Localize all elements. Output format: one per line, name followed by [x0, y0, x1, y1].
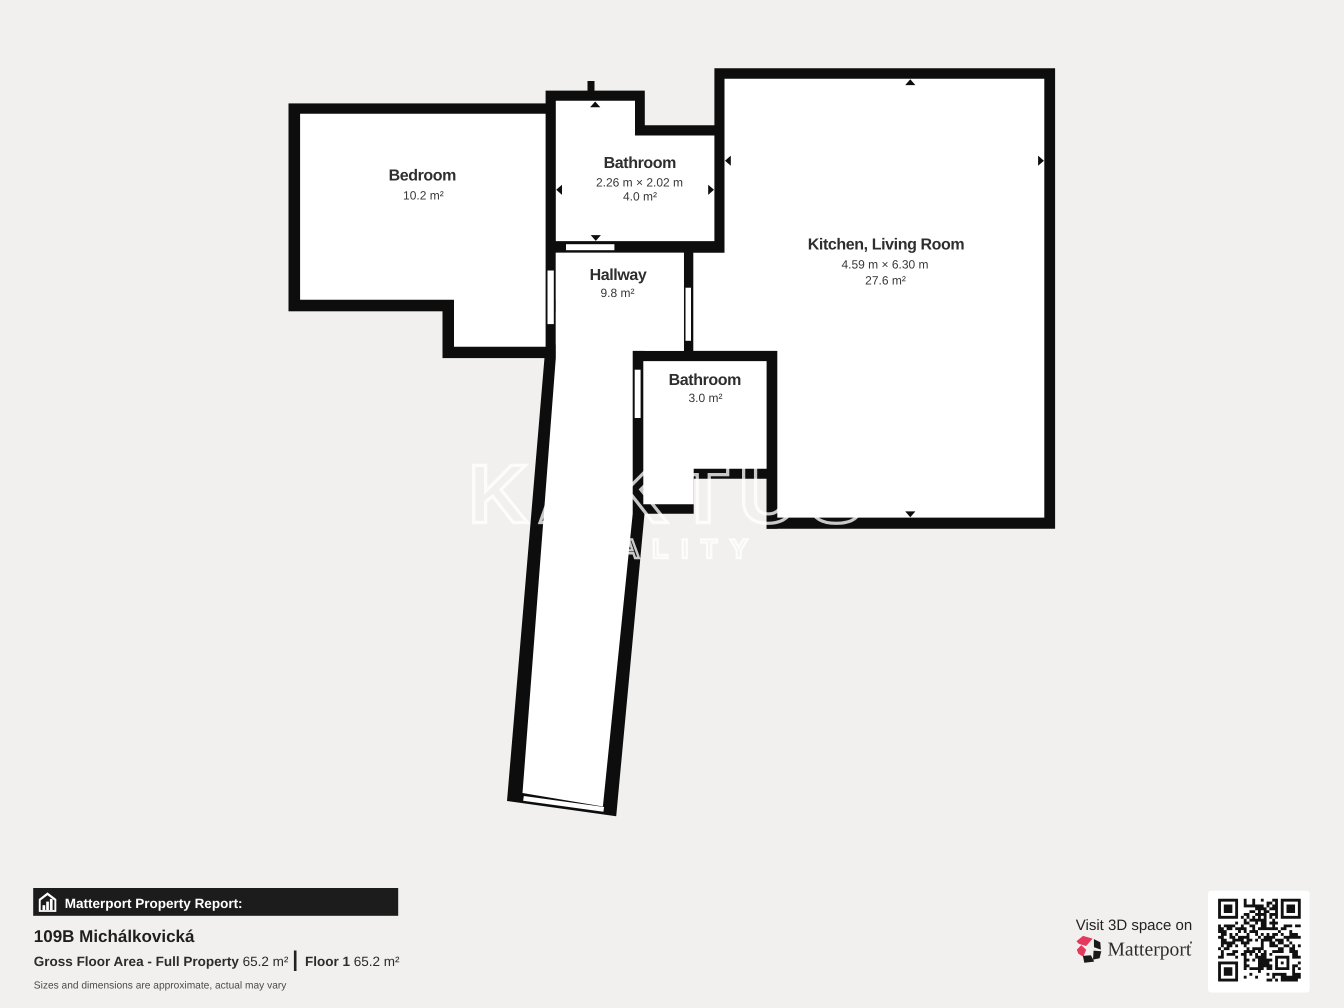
svg-text:Gross Floor Area - Full Proper: Gross Floor Area - Full Property 65.2 m²: [34, 954, 289, 969]
svg-text:KAKTUS: KAKTUS: [468, 448, 874, 541]
svg-text:3.0 m²: 3.0 m²: [688, 391, 722, 405]
svg-text:4.59 m × 6.30 m: 4.59 m × 6.30 m: [841, 258, 928, 272]
svg-text:Floor 1 65.2 m²: Floor 1 65.2 m²: [305, 954, 400, 969]
svg-text:Visit 3D space on: Visit 3D space on: [1076, 917, 1192, 934]
svg-text:27.6 m²: 27.6 m²: [865, 273, 906, 287]
svg-text:10.2 m²: 10.2 m²: [403, 188, 444, 202]
svg-text:9.8 m²: 9.8 m²: [600, 286, 634, 300]
svg-text:Bathroom: Bathroom: [669, 372, 742, 389]
svg-text:Bathroom: Bathroom: [604, 155, 677, 172]
svg-text:4.0 m²: 4.0 m²: [623, 189, 657, 203]
svg-text:Matterport Property Report:: Matterport Property Report:: [65, 896, 243, 911]
svg-text:REALITY: REALITY: [558, 534, 760, 564]
svg-text:Hallway: Hallway: [590, 267, 647, 284]
svg-text:Kitchen, Living Room: Kitchen, Living Room: [808, 237, 965, 254]
svg-text:Matterport: Matterport: [1108, 940, 1192, 961]
svg-text:2.26 m × 2.02 m: 2.26 m × 2.02 m: [596, 175, 683, 189]
svg-text:109B Michálkovická: 109B Michálkovická: [34, 927, 195, 946]
svg-text:Bedroom: Bedroom: [389, 168, 457, 185]
svg-text:Sizes and dimensions are appro: Sizes and dimensions are approximate, ac…: [34, 981, 287, 992]
